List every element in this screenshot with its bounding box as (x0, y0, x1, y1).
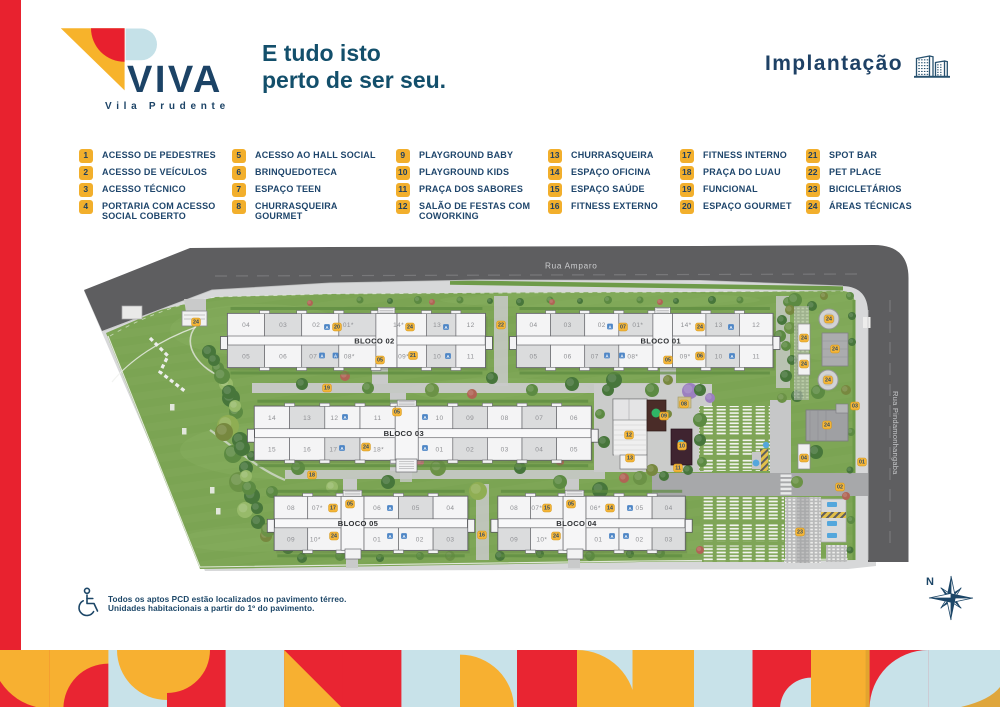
svg-text:05: 05 (377, 358, 383, 364)
svg-text:10: 10 (715, 354, 723, 361)
svg-text:05: 05 (242, 354, 250, 361)
svg-text:A: A (610, 534, 613, 539)
svg-text:21: 21 (410, 353, 416, 359)
svg-text:09: 09 (287, 536, 295, 543)
svg-text:06: 06 (697, 354, 703, 360)
svg-text:17: 17 (329, 446, 337, 453)
svg-text:03: 03 (279, 322, 287, 329)
svg-text:11: 11 (675, 466, 681, 472)
svg-text:05: 05 (394, 410, 400, 416)
svg-text:18: 18 (309, 473, 315, 479)
svg-text:14*: 14* (393, 322, 404, 329)
svg-text:02: 02 (416, 536, 424, 543)
svg-text:A: A (334, 353, 337, 358)
svg-text:04: 04 (801, 456, 807, 462)
svg-text:06: 06 (279, 354, 287, 361)
svg-text:05: 05 (570, 446, 578, 453)
svg-text:24: 24 (697, 325, 703, 331)
svg-text:22: 22 (498, 323, 504, 329)
svg-text:09*: 09* (680, 354, 691, 361)
svg-text:14: 14 (268, 415, 276, 422)
svg-text:A: A (628, 506, 631, 511)
svg-text:12: 12 (330, 415, 338, 422)
svg-text:09: 09 (510, 536, 518, 543)
svg-text:N: N (926, 576, 934, 588)
svg-text:A: A (402, 534, 405, 539)
svg-text:08: 08 (681, 402, 687, 408)
svg-text:13: 13 (627, 456, 633, 462)
svg-text:05: 05 (529, 354, 537, 361)
svg-text:07: 07 (535, 415, 543, 422)
svg-text:09: 09 (661, 414, 667, 420)
svg-text:08: 08 (510, 505, 518, 512)
svg-text:07: 07 (620, 325, 626, 331)
svg-text:07: 07 (309, 354, 317, 361)
svg-text:16: 16 (303, 446, 311, 453)
svg-text:18*: 18* (373, 446, 384, 453)
svg-text:BLOCO 05: BLOCO 05 (338, 519, 379, 528)
svg-text:07*: 07* (531, 505, 542, 512)
svg-text:11: 11 (467, 354, 475, 361)
svg-text:09: 09 (466, 415, 474, 422)
svg-text:02: 02 (598, 322, 606, 329)
svg-text:05: 05 (412, 505, 420, 512)
svg-text:24: 24 (826, 317, 832, 323)
svg-text:17: 17 (330, 506, 336, 512)
svg-text:BLOCO 04: BLOCO 04 (556, 519, 597, 528)
svg-text:24: 24 (832, 347, 838, 353)
svg-text:04: 04 (535, 446, 543, 453)
svg-text:20: 20 (334, 325, 340, 331)
svg-text:04: 04 (446, 505, 454, 512)
svg-text:10*: 10* (536, 536, 547, 543)
svg-text:14: 14 (607, 506, 613, 512)
svg-text:03: 03 (852, 404, 858, 410)
svg-text:13: 13 (433, 322, 441, 329)
svg-text:02: 02 (466, 446, 474, 453)
svg-text:01: 01 (859, 460, 865, 466)
svg-text:A: A (388, 534, 391, 539)
svg-text:11: 11 (374, 415, 382, 422)
svg-text:05: 05 (635, 505, 643, 512)
svg-text:04: 04 (242, 322, 250, 329)
svg-text:A: A (608, 324, 611, 329)
svg-text:A: A (388, 506, 391, 511)
svg-text:12: 12 (752, 322, 760, 329)
svg-text:08: 08 (287, 505, 295, 512)
svg-text:01*: 01* (343, 322, 354, 329)
svg-text:13: 13 (303, 415, 311, 422)
svg-text:12: 12 (467, 322, 475, 329)
svg-text:02: 02 (635, 536, 643, 543)
svg-text:19: 19 (324, 386, 330, 392)
svg-text:06: 06 (570, 415, 578, 422)
svg-text:BLOCO 01: BLOCO 01 (641, 336, 682, 345)
svg-text:Rua Amparo: Rua Amparo (545, 262, 598, 271)
svg-text:14*: 14* (681, 322, 692, 329)
svg-text:02: 02 (837, 485, 843, 491)
svg-text:A: A (446, 354, 449, 359)
svg-text:15: 15 (268, 446, 276, 453)
svg-text:08: 08 (501, 415, 509, 422)
svg-text:A: A (343, 415, 346, 420)
svg-text:05: 05 (347, 502, 353, 508)
svg-text:11: 11 (752, 354, 760, 361)
svg-text:04: 04 (529, 322, 537, 329)
svg-text:24: 24 (407, 325, 413, 331)
svg-text:03: 03 (501, 446, 509, 453)
svg-text:A: A (605, 353, 608, 358)
svg-text:10*: 10* (310, 536, 321, 543)
svg-text:04: 04 (665, 505, 673, 512)
svg-text:A: A (325, 325, 328, 330)
svg-text:24: 24 (363, 445, 369, 451)
svg-text:A: A (423, 415, 426, 420)
svg-text:A: A (620, 353, 623, 358)
svg-text:03: 03 (446, 536, 454, 543)
svg-text:05: 05 (665, 358, 671, 364)
svg-text:15: 15 (544, 506, 550, 512)
svg-text:24: 24 (801, 336, 807, 342)
svg-text:01: 01 (373, 536, 381, 543)
svg-text:13: 13 (715, 322, 723, 329)
svg-text:07: 07 (591, 354, 599, 361)
svg-text:24: 24 (553, 534, 559, 540)
svg-text:BLOCO 03: BLOCO 03 (384, 429, 424, 438)
svg-text:24: 24 (801, 362, 807, 368)
svg-text:24: 24 (824, 423, 830, 429)
svg-text:01: 01 (594, 536, 602, 543)
svg-text:10: 10 (433, 354, 441, 361)
svg-text:A: A (730, 354, 733, 359)
svg-text:12: 12 (626, 433, 632, 439)
svg-text:03: 03 (665, 536, 673, 543)
svg-text:A: A (340, 446, 343, 451)
svg-text:06*: 06* (590, 505, 601, 512)
svg-text:05: 05 (568, 502, 574, 508)
svg-text:08*: 08* (627, 354, 638, 361)
svg-text:16: 16 (479, 533, 485, 539)
svg-text:24: 24 (331, 534, 337, 540)
svg-text:A: A (729, 325, 732, 330)
svg-text:10: 10 (435, 415, 443, 422)
svg-text:06: 06 (373, 505, 381, 512)
svg-text:01: 01 (435, 446, 443, 453)
svg-text:A: A (444, 325, 447, 330)
svg-text:10: 10 (679, 444, 685, 450)
svg-text:A: A (320, 353, 323, 358)
svg-text:09*: 09* (398, 354, 409, 361)
svg-text:03: 03 (564, 322, 572, 329)
svg-text:A: A (624, 534, 627, 539)
svg-text:01*: 01* (632, 322, 643, 329)
svg-text:A: A (423, 446, 426, 451)
svg-text:BLOCO 02: BLOCO 02 (354, 336, 394, 345)
svg-text:24: 24 (193, 320, 199, 326)
svg-text:Rua Pindamonhangaba: Rua Pindamonhangaba (891, 391, 900, 475)
svg-text:08*: 08* (344, 354, 355, 361)
svg-text:24: 24 (825, 378, 831, 384)
svg-text:06: 06 (564, 354, 572, 361)
svg-text:02: 02 (312, 322, 320, 329)
svg-text:07*: 07* (312, 505, 323, 512)
svg-text:23: 23 (797, 530, 803, 536)
